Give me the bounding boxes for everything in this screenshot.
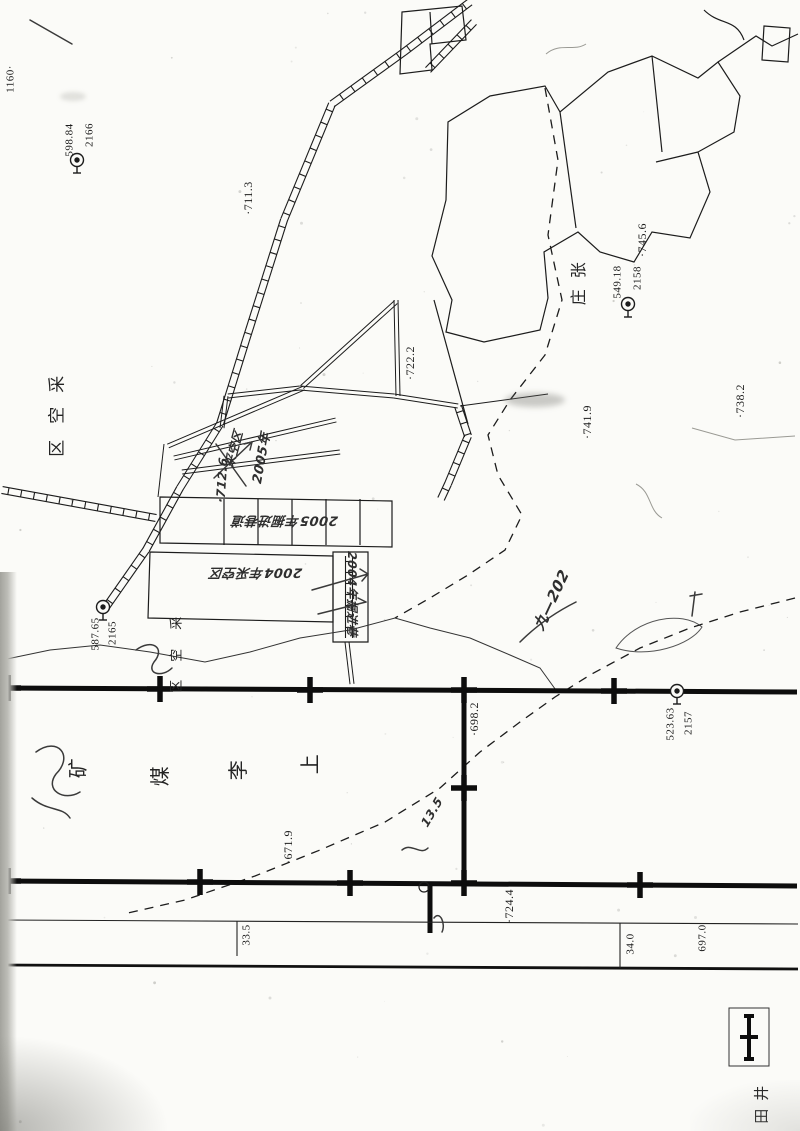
benchmark-icon	[71, 154, 684, 705]
scan-noise	[1, 12, 795, 1127]
faint-contour-line	[546, 44, 795, 518]
map-linework	[0, 0, 800, 1131]
scan-smudge	[505, 393, 565, 407]
stream-line	[2, 618, 558, 693]
boundary-cross-tick	[0, 675, 653, 898]
mined-panel-outline	[148, 497, 392, 642]
village-outline	[400, 6, 798, 424]
legend-boundary-symbol	[740, 1015, 758, 1060]
pencil-scrawl	[30, 20, 702, 932]
pond-outline	[616, 618, 702, 652]
scanned-mine-map-page: 1160·2166598.84·711.3·745.62158549.18张庄·…	[0, 0, 800, 1131]
mine-boundary-line	[2, 688, 797, 933]
scan-smudge	[60, 92, 86, 101]
road-line	[2, 920, 798, 969]
